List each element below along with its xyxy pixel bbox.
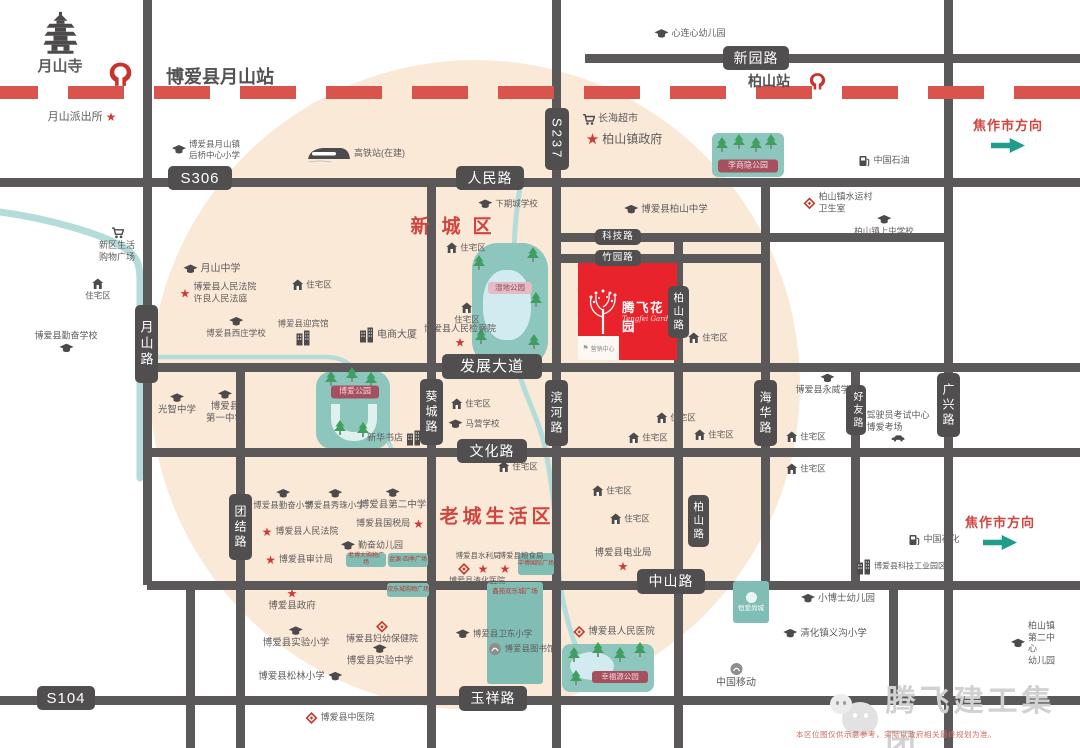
china-railway-logo bbox=[107, 61, 134, 88]
road-label: 发展大道 bbox=[442, 354, 542, 379]
station-name: 博爱县月山站 bbox=[166, 63, 274, 89]
star-marker-icon: ★ bbox=[287, 587, 298, 599]
poi-cap: 下期城学校 bbox=[478, 198, 538, 209]
poi-label: 住宅区 bbox=[642, 432, 668, 443]
poi-cap: 博爱县勤奋小学 bbox=[253, 489, 313, 511]
hospital-icon bbox=[305, 712, 317, 724]
star-marker-icon: ★ bbox=[586, 133, 599, 148]
poi-cart: 新区生活购物广场 bbox=[99, 227, 135, 263]
poi-cap: 博爱县勤奋学校 bbox=[34, 331, 97, 354]
star-marker-icon: ★ bbox=[413, 518, 424, 530]
poi-label: 博爱县清化医院 bbox=[449, 576, 505, 586]
poi-house: 住宅区 bbox=[446, 242, 486, 253]
retail-block: 欢乐城购物广场 bbox=[387, 583, 429, 597]
road-fazhan-avenue bbox=[147, 363, 1080, 372]
road-label: 月山路 bbox=[135, 305, 158, 383]
location-map: 腾飞花园 Tengfei Garden ⚑ 营销中心 腾飞建工集团 本区位图仅供… bbox=[0, 0, 1080, 748]
poi-cap: 光智中学 bbox=[158, 393, 196, 416]
poi-house: 住宅区 bbox=[688, 332, 728, 343]
poi-cap: 博爱县柏山中学 bbox=[624, 204, 708, 216]
poi-cap: 博爱县永威学校 bbox=[795, 374, 858, 397]
poi-label: 住宅区 bbox=[306, 279, 332, 290]
poi-house: 住宅区 bbox=[85, 278, 111, 301]
road-label: 文化路 bbox=[457, 439, 527, 463]
poi-label: 中国移动 bbox=[716, 677, 756, 690]
star-marker-icon: ★ bbox=[265, 554, 276, 566]
poi-star: ★柏山镇政府 bbox=[586, 132, 662, 148]
tree-icon bbox=[346, 367, 358, 382]
school-icon bbox=[218, 390, 232, 400]
road-label: S306 bbox=[168, 166, 232, 190]
residential-icon bbox=[656, 412, 667, 423]
tree-icon bbox=[568, 647, 580, 662]
road-label: 团结路 bbox=[229, 494, 252, 560]
tree-icon bbox=[528, 334, 540, 349]
poi-label: 中国石油 bbox=[873, 155, 909, 167]
poi-diamond: 博爱县妇幼保健院 bbox=[346, 621, 418, 646]
poi-label: 住宅区 bbox=[702, 332, 728, 343]
poi-label: 博爱县月山镇后桥中心小学 bbox=[189, 139, 240, 161]
direction-arrow-icon bbox=[991, 138, 1025, 153]
poi-label: 下期城学校 bbox=[495, 198, 538, 209]
poi-cap: 小博士幼儿园 bbox=[801, 593, 875, 605]
residential-icon bbox=[292, 279, 303, 290]
poi-label: 新区生活购物广场 bbox=[99, 240, 135, 263]
tree-icon bbox=[614, 647, 626, 662]
poi-cap: 博爱县月山镇后桥中心小学 bbox=[172, 139, 240, 161]
poi-star: ★ bbox=[478, 563, 489, 575]
school-icon bbox=[328, 489, 342, 499]
poi-star: ★ bbox=[500, 563, 511, 575]
poi-house: 住宅区 bbox=[786, 431, 826, 442]
school-icon bbox=[341, 541, 355, 551]
poi-pagoda: 月山寺 bbox=[37, 12, 82, 77]
tree-icon bbox=[570, 670, 582, 685]
direction-arrow-icon bbox=[983, 535, 1017, 550]
gas-station-icon bbox=[858, 155, 870, 167]
school-icon bbox=[654, 29, 668, 39]
poi-building: 博爱县迎宾馆 bbox=[277, 318, 328, 345]
school-icon bbox=[373, 644, 387, 654]
poi-diamond: 博爱县人民医院 bbox=[573, 626, 655, 638]
road-label: 广兴路 bbox=[937, 373, 960, 437]
poi-label: 博爱县实验中学 bbox=[347, 655, 414, 667]
road-renmin-road-s306 bbox=[0, 178, 1080, 187]
poi-cap: 博爱县松林小学 bbox=[258, 671, 342, 683]
road-xinyuan-road bbox=[585, 54, 1080, 63]
residential-icon bbox=[498, 461, 509, 472]
school-icon bbox=[448, 419, 462, 429]
poi-cap: 柏山镇第二中心幼儿园 bbox=[1011, 621, 1057, 668]
school-icon bbox=[783, 629, 797, 639]
poi-cap: 清化镇义沟小学 bbox=[783, 628, 867, 640]
poi-label: 住宅区 bbox=[800, 463, 826, 474]
poi-label: 中国石化 bbox=[923, 534, 959, 546]
poi-house: 住宅区 bbox=[292, 279, 332, 290]
poi-label: 柏山镇第二中心幼儿园 bbox=[1028, 621, 1057, 668]
school-icon bbox=[172, 145, 186, 155]
poi-star: ★博爱县审计局 bbox=[265, 554, 333, 566]
poi-label: 博爱县政府 bbox=[268, 600, 316, 612]
road-kuicheng-road bbox=[427, 182, 436, 748]
poi-cap: 博爱县秀珠小学 bbox=[305, 489, 365, 511]
school-icon bbox=[229, 317, 243, 327]
poi-label: 住宅区 bbox=[512, 461, 538, 472]
poi-label: 博爱县电业局 bbox=[594, 547, 651, 559]
direction-text: 焦作市方向 bbox=[973, 115, 1043, 134]
residential-icon bbox=[446, 242, 457, 253]
road-label: 海华路 bbox=[754, 380, 777, 446]
poi-telecom: 中国移动 bbox=[716, 663, 756, 690]
poi-cap: 博爱县实验中学 bbox=[347, 644, 414, 667]
direction-jiaozuo-1: 焦作市方向 bbox=[965, 512, 1035, 550]
poi-diamond: 柏山镇水运村卫生室 bbox=[803, 191, 872, 214]
road-label: S104 bbox=[37, 686, 95, 710]
poi-label: 博爱县人民检察院 bbox=[424, 324, 496, 336]
park-label: 幸福源公园 bbox=[592, 671, 648, 683]
poi-label: 博爱县图书馆 bbox=[504, 643, 555, 654]
poi-label: 博爱县松林小学 bbox=[258, 671, 325, 683]
road-label: 科技路 bbox=[595, 229, 641, 245]
poi-house: 住宅区 bbox=[592, 485, 632, 496]
star-marker-icon: ★ bbox=[500, 563, 511, 575]
poi-house: 住宅区 bbox=[451, 398, 491, 409]
school-icon bbox=[328, 672, 342, 682]
residential-icon bbox=[610, 513, 621, 524]
poi-label: 博爱县实验小学 bbox=[263, 637, 330, 649]
hospital-icon bbox=[376, 621, 388, 633]
building-icon bbox=[295, 331, 310, 346]
poi-label: 住宅区 bbox=[460, 242, 486, 253]
poi-label: 勤奋幼儿园 bbox=[358, 540, 403, 552]
poi-label: 柏山镇政府 bbox=[602, 132, 662, 148]
poi: 博爱县水利局 bbox=[456, 551, 501, 561]
poi-label: 博爱县第一中学 bbox=[206, 401, 244, 426]
school-icon bbox=[276, 489, 290, 499]
poi-label: 月山中学 bbox=[201, 263, 241, 276]
poi-label: 光智中学 bbox=[158, 404, 196, 416]
poi-star: ★博爱县人民法院许良人民法庭 bbox=[180, 281, 257, 304]
school-icon bbox=[184, 264, 198, 274]
poi-house: 住宅区 bbox=[610, 513, 650, 524]
hospital-icon bbox=[458, 563, 470, 575]
poi-cap: 博爱县第二中学 bbox=[360, 488, 427, 511]
poi-label: 心连心幼儿园 bbox=[671, 28, 725, 40]
building-icon bbox=[406, 431, 421, 446]
school-icon bbox=[877, 215, 891, 225]
poi-house: 住宅区 bbox=[694, 429, 734, 440]
poi-label: 博爱县审计局 bbox=[279, 554, 333, 566]
road-label: S237 bbox=[545, 108, 569, 170]
school-icon bbox=[1011, 639, 1025, 649]
tree-icon bbox=[527, 247, 539, 262]
residential-icon bbox=[694, 429, 705, 440]
tree-icon bbox=[634, 642, 646, 657]
tree-icon bbox=[334, 420, 346, 435]
poi-label: 博爱县粮食局 bbox=[499, 551, 544, 561]
poi-label: 博爱县卫东小学 bbox=[473, 628, 533, 639]
poi-label: 博爱县人民法院许良人民法庭 bbox=[193, 281, 256, 304]
poi-house: 住宅区 bbox=[454, 302, 480, 325]
shopping-icon bbox=[110, 227, 123, 239]
residential-icon bbox=[628, 432, 639, 443]
hospital-icon bbox=[803, 197, 815, 209]
poi-label: 住宅区 bbox=[465, 398, 491, 409]
poi: 博爱县粮食局 bbox=[499, 551, 544, 561]
poi-label: 博爱县人民医院 bbox=[588, 626, 655, 638]
china-railway-logo bbox=[808, 72, 827, 91]
road-zhuyuan-road bbox=[556, 254, 765, 263]
retail-block: 金源·四季广场 bbox=[388, 553, 428, 567]
map-disclaimer: 本区位图仅供示意参考，实际以政府相关最终规划为准。 bbox=[796, 729, 996, 740]
area-label-new-city: 新城区 bbox=[410, 212, 503, 239]
poi-building: 博爱县科技工业园区 bbox=[856, 560, 946, 575]
poi-label: 清化镇义沟小学 bbox=[800, 628, 867, 640]
poi-house: 住宅区 bbox=[786, 463, 826, 474]
road-label: 葵城路 bbox=[420, 379, 443, 445]
poi-label: 博爱县永威学校 bbox=[795, 385, 858, 397]
poi-label: 高铁站(在建) bbox=[354, 148, 405, 160]
road-label: 柏山路 bbox=[668, 286, 689, 338]
poi: 博爱县清化医院 bbox=[449, 576, 505, 586]
park-label: 博爱公园 bbox=[331, 386, 379, 399]
poi-star: ★月山派出所 bbox=[48, 110, 117, 124]
poi-label: 月山派出所 bbox=[48, 110, 103, 124]
road-label: 滨河路 bbox=[545, 380, 568, 446]
residential-icon bbox=[592, 485, 603, 496]
residential-icon bbox=[786, 463, 797, 474]
building-icon bbox=[856, 560, 871, 575]
poi-label: 住宅区 bbox=[606, 485, 632, 496]
poi-label: 博爱县国税局 bbox=[356, 518, 410, 530]
gas-station-icon bbox=[908, 534, 920, 546]
tree-icon bbox=[733, 134, 745, 149]
poi-label: 博爱县第二中学 bbox=[360, 499, 427, 511]
poi-cap: 博爱县西庄学校 bbox=[206, 317, 266, 339]
poi-house: 住宅区 bbox=[656, 412, 696, 423]
school-icon bbox=[801, 594, 815, 604]
road-label: 竹园路 bbox=[595, 250, 641, 266]
star-marker-icon: ★ bbox=[455, 336, 466, 348]
park-label: 湿地公园 bbox=[488, 282, 532, 294]
poi-cap: 马营学校 bbox=[448, 418, 499, 429]
poi-label: 住宅区 bbox=[708, 429, 734, 440]
residential-icon bbox=[688, 332, 699, 343]
project-tengfei-garden: 腾飞花园 Tengfei Garden ⚑ 营销中心 bbox=[578, 263, 677, 360]
shopping-icon bbox=[582, 113, 595, 125]
car-icon bbox=[890, 434, 905, 442]
residential-icon bbox=[451, 398, 462, 409]
poi-label: 博爱县柏山中学 bbox=[641, 204, 708, 216]
tree-icon bbox=[592, 642, 604, 657]
poi-cap: 心连心幼儿园 bbox=[654, 28, 725, 40]
poi-star: ★博爱县人民法院 bbox=[262, 526, 339, 538]
poi-label: 月山寺 bbox=[37, 57, 82, 77]
telecom-icon bbox=[488, 643, 501, 656]
road-label: 新园路 bbox=[723, 46, 789, 70]
poi-label: 博爱县人民法院 bbox=[275, 526, 338, 538]
school-icon bbox=[456, 629, 470, 639]
project-tree-logo-icon bbox=[586, 287, 620, 335]
poi-cap: 勤奋幼儿园 bbox=[341, 540, 403, 552]
school-icon bbox=[386, 488, 400, 498]
poi-gas: 中国石化 bbox=[908, 534, 959, 546]
railway-line bbox=[0, 86, 1080, 99]
residential-icon bbox=[461, 302, 472, 313]
poi-label: 驾驶员考试中心博爱考场 bbox=[866, 410, 929, 433]
school-icon bbox=[289, 626, 303, 636]
poi-building: 新华书店 bbox=[367, 431, 421, 446]
hospital-icon bbox=[573, 626, 585, 638]
area-label-old-town: 老城生活区 bbox=[439, 502, 554, 529]
poi-cart: 长海超市 bbox=[582, 113, 638, 126]
direction-jiaozuo-0: 焦作市方向 bbox=[973, 115, 1043, 153]
tree-icon bbox=[716, 137, 728, 152]
poi-label: 博爱县西庄学校 bbox=[206, 328, 266, 339]
poi-label: 住宅区 bbox=[800, 431, 826, 442]
poi-label: 住宅区 bbox=[670, 412, 696, 423]
park-label: 李商隐公园 bbox=[718, 160, 778, 173]
poi-diamond bbox=[458, 563, 470, 575]
star-marker-icon: ★ bbox=[478, 563, 489, 575]
poi-star: ★博爱县电业局 bbox=[594, 547, 651, 572]
poi-label: 电商大厦 bbox=[377, 329, 417, 342]
poi-label: 博爱县勤奋小学 bbox=[253, 500, 313, 511]
residential-icon bbox=[92, 278, 103, 289]
poi-cap: 博爱县实验小学 bbox=[263, 626, 330, 649]
poi-telecom: 博爱县图书馆 bbox=[488, 643, 555, 656]
poi-cap: 博爱县第一中学 bbox=[206, 390, 244, 426]
poi-label: 博爱县科技工业园区 bbox=[874, 562, 946, 572]
poi-label: 博爱县水利局 bbox=[456, 551, 501, 561]
poi-label: 博爱县勤奋学校 bbox=[34, 331, 97, 343]
star-marker-icon: ★ bbox=[618, 561, 629, 573]
tree-icon bbox=[750, 137, 762, 152]
school-icon bbox=[170, 393, 184, 403]
road-wenhua-road bbox=[147, 448, 1080, 457]
star-marker-icon: ★ bbox=[106, 111, 117, 123]
school-icon bbox=[820, 374, 834, 384]
retail-block: 恒爱尚城 bbox=[733, 581, 769, 623]
star-marker-icon: ★ bbox=[262, 526, 273, 538]
road-west-south-road bbox=[186, 585, 195, 748]
road-label: 人民路 bbox=[456, 166, 524, 190]
direction-text: 焦作市方向 bbox=[965, 512, 1035, 531]
poi-label: 博爱县秀珠小学 bbox=[305, 500, 365, 511]
poi-house: 住宅区 bbox=[498, 461, 538, 472]
road-label: 柏山路 bbox=[688, 495, 709, 547]
poi-label: 博爱县中医院 bbox=[320, 712, 374, 724]
poi-diamond: 博爱县中医院 bbox=[305, 712, 374, 724]
school-icon bbox=[59, 343, 73, 353]
sales-center-box: ⚑ 营销中心 bbox=[578, 336, 619, 360]
flag-icon: ⚑ bbox=[582, 344, 588, 352]
poi-label: 博爱县迎宾馆 bbox=[277, 318, 328, 329]
poi-cap: 柏山镇上屯学校 bbox=[854, 215, 914, 237]
temple-pagoda-icon bbox=[43, 12, 77, 56]
station-name: 柏山站 bbox=[748, 71, 790, 91]
poi-house: 住宅区 bbox=[628, 432, 668, 443]
tree-icon bbox=[765, 134, 777, 149]
school-icon bbox=[624, 205, 638, 215]
poi-label: 长海超市 bbox=[598, 113, 638, 126]
residential-icon bbox=[786, 431, 797, 442]
poi-gas: 中国石油 bbox=[858, 155, 909, 167]
poi-cap: 月山中学 bbox=[184, 263, 241, 276]
hsr-train-icon bbox=[307, 143, 351, 165]
tree-icon bbox=[325, 371, 337, 386]
estate-logo-icon bbox=[746, 592, 757, 603]
poi-cap: 博爱县卫东小学 bbox=[456, 628, 533, 639]
school-icon bbox=[478, 199, 492, 209]
poi-train: 高铁站(在建) bbox=[307, 143, 405, 165]
poi-star: ★博爱县人民检察院 bbox=[424, 324, 496, 349]
poi-car: 驾驶员考试中心博爱考场 bbox=[866, 410, 929, 442]
retail-block: 老博大购物广场 bbox=[346, 553, 386, 567]
tree-icon bbox=[473, 255, 485, 270]
poi-label: 住宅区 bbox=[85, 290, 111, 301]
poi-label: 柏山镇上屯学校 bbox=[854, 226, 914, 237]
star-marker-icon: ★ bbox=[180, 287, 191, 299]
road-label: 玉祥路 bbox=[459, 686, 527, 711]
poi-label: 住宅区 bbox=[624, 513, 650, 524]
poi-star: ★博爱县政府 bbox=[268, 587, 316, 612]
building-icon bbox=[359, 328, 374, 343]
poi-building: 电商大厦 bbox=[359, 328, 417, 343]
poi-label: 马营学校 bbox=[465, 418, 499, 429]
poi-label: 新华书店 bbox=[367, 432, 403, 444]
poi-label: 小博士幼儿园 bbox=[818, 593, 875, 605]
poi-star: ★博爱县国税局 bbox=[356, 518, 424, 530]
telecom-icon bbox=[730, 663, 743, 676]
tree-icon bbox=[530, 292, 542, 307]
poi-label: 柏山镇水运村卫生室 bbox=[818, 191, 872, 214]
